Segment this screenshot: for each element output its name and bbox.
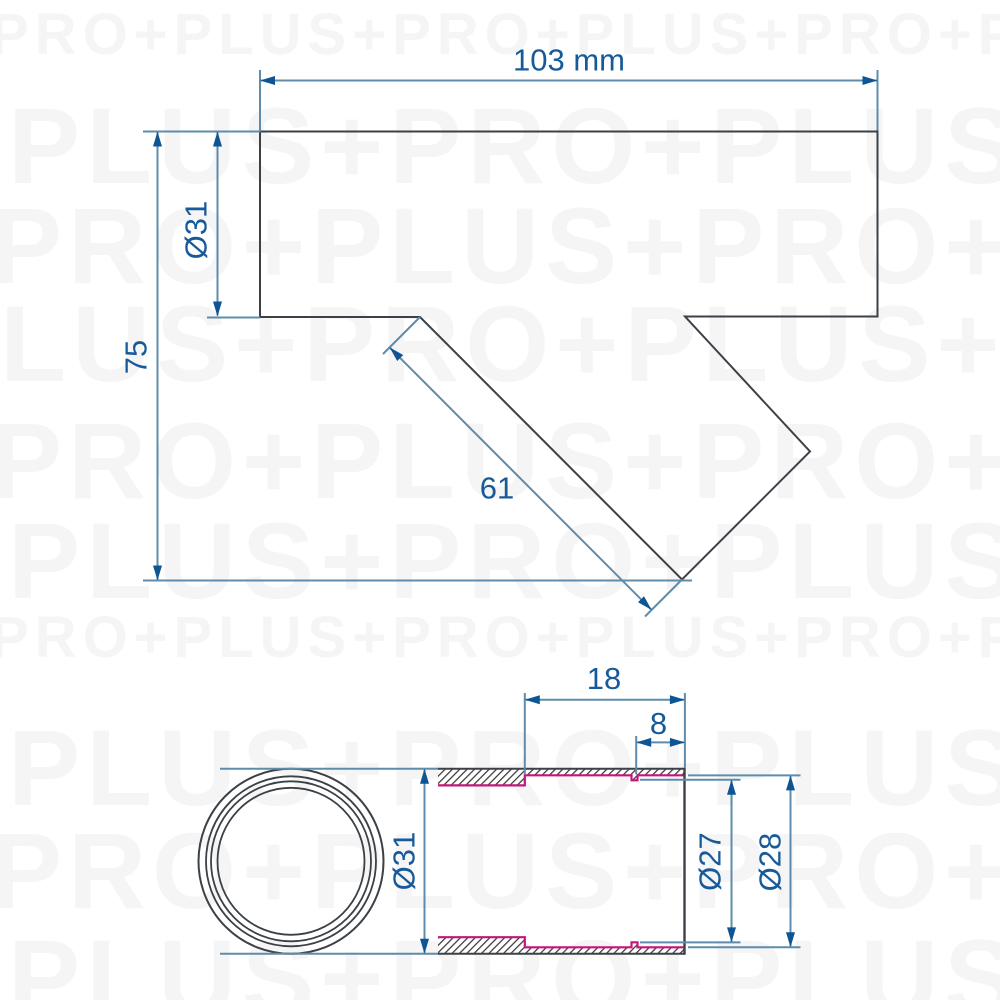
- svg-text:PRO+PLUS+PRO+PLUS+PRO+PLUS: PRO+PLUS+PRO+PLUS+PRO+PLUS: [0, 605, 1000, 670]
- svg-text:61: 61: [480, 471, 514, 506]
- svg-text:18: 18: [587, 661, 621, 696]
- svg-text:Ø31: Ø31: [387, 832, 422, 891]
- svg-text:PRO+PLUS+PRO+PLUS: PRO+PLUS+PRO+PLUS: [0, 500, 1000, 621]
- svg-text:103 mm: 103 mm: [513, 43, 625, 78]
- svg-text:PRO+PLUS+PRO+PLUS: PRO+PLUS+PRO+PLUS: [0, 810, 1000, 931]
- svg-text:PRO+PLUS+PRO+PLUS: PRO+PLUS+PRO+PLUS: [0, 917, 1000, 1000]
- svg-text:Ø31: Ø31: [179, 201, 214, 260]
- svg-text:PRO+PLUS+PRO+PLUS+PRO+PLUS: PRO+PLUS+PRO+PLUS+PRO+PLUS: [0, 2, 1000, 67]
- svg-text:8: 8: [650, 706, 667, 741]
- svg-text:Ø27: Ø27: [692, 832, 727, 891]
- svg-text:75: 75: [119, 340, 154, 374]
- svg-text:Ø28: Ø28: [753, 833, 788, 892]
